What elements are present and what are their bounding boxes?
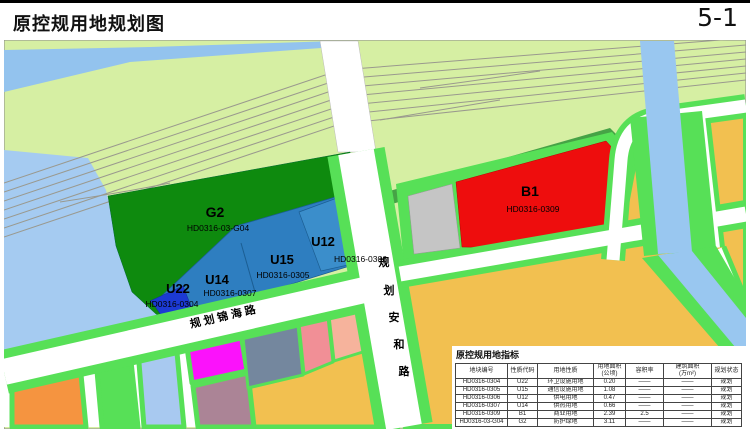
svg-text:路: 路 <box>399 364 411 378</box>
cell: U14 <box>508 403 538 411</box>
th-code: 性质代码 <box>508 364 538 379</box>
label-u22: U22 <box>166 281 190 296</box>
cell: 商业用地 <box>538 411 594 419</box>
cell: 3.11 <box>594 419 626 427</box>
code-g2: HD0316-03-G04 <box>187 223 250 233</box>
cell: HD0316-0304 <box>456 379 508 387</box>
table-row: HD0316-0304U22环卫设施用地0.20————规划 <box>456 379 742 387</box>
cell: 环卫设施用地 <box>538 379 594 387</box>
cell: U12 <box>508 395 538 403</box>
cell: B1 <box>508 411 538 419</box>
cell: —— <box>664 411 712 419</box>
cell: G2 <box>508 419 538 427</box>
label-u15: U15 <box>270 252 294 267</box>
svg-text:规: 规 <box>379 255 390 269</box>
cell: 0.66 <box>594 403 626 411</box>
cell: 0.47 <box>594 395 626 403</box>
svg-text:安: 安 <box>389 310 400 324</box>
cell: 规划 <box>712 395 742 403</box>
cell: —— <box>664 379 712 387</box>
cell: 规划 <box>712 411 742 419</box>
cell: —— <box>664 387 712 395</box>
cell: —— <box>626 403 664 411</box>
cell: U15 <box>508 387 538 395</box>
th-status: 规划状态 <box>712 364 742 379</box>
th-far: 容积率 <box>626 364 664 379</box>
cell: 规划 <box>712 403 742 411</box>
planning-sheet: { "page": { "title": "原控规用地规划图", "sheet_… <box>0 0 750 443</box>
table-row: HD0316-0307U14供热用地0.66————规划 <box>456 403 742 411</box>
gray-parcel <box>408 184 460 254</box>
cell: —— <box>664 403 712 411</box>
label-g2: G2 <box>206 204 225 220</box>
cell: 2.5 <box>626 411 664 419</box>
cell: HD0316-0309 <box>456 411 508 419</box>
cell: 规划 <box>712 419 742 427</box>
cell: 通信设施用地 <box>538 387 594 395</box>
th-plot-no: 地块编号 <box>456 364 508 379</box>
cell: 防护绿地 <box>538 419 594 427</box>
table-row: HD0316-0305U15通信设施用地1.08————规划 <box>456 387 742 395</box>
page-title: 原控规用地规划图 <box>13 10 165 36</box>
label-u12: U12 <box>311 234 335 249</box>
cell: HD0316-0305 <box>456 387 508 395</box>
cell: —— <box>664 419 712 427</box>
sheet-number: 5-1 <box>697 3 738 32</box>
code-u22: HD0316-0304 <box>146 299 199 309</box>
cell: —— <box>626 387 664 395</box>
th-use: 用地性质 <box>538 364 594 379</box>
index-table-panel: 原控规用地指标 地块编号 性质代码 用地性质 用地面积 (公顷) 容积率 建筑面… <box>452 346 748 443</box>
cell: HD0316-0307 <box>456 403 508 411</box>
code-u14: HD0316-0307 <box>204 288 257 298</box>
index-table: 地块编号 性质代码 用地性质 用地面积 (公顷) 容积率 建筑面积 (万m²) … <box>455 363 742 427</box>
cell: 2.39 <box>594 411 626 419</box>
cell: —— <box>664 395 712 403</box>
table-row: HD0316-0306U12供电用地0.47————规划 <box>456 395 742 403</box>
table-row: HD0316-03-G04G2防护绿地3.11————规划 <box>456 419 742 427</box>
top-rule <box>0 0 750 3</box>
cell: 供热用地 <box>538 403 594 411</box>
cell: 供电用地 <box>538 395 594 403</box>
svg-text:划: 划 <box>384 283 395 297</box>
label-b1: B1 <box>521 183 539 199</box>
table-row: HD0316-0309B1商业用地2.392.5——规划 <box>456 411 742 419</box>
label-u14: U14 <box>205 272 230 287</box>
th-floor: 建筑面积 (万m²) <box>664 364 712 379</box>
cell: —— <box>626 379 664 387</box>
th-area: 用地面积 (公顷) <box>594 364 626 379</box>
cell: U22 <box>508 379 538 387</box>
code-u15: HD0316-0305 <box>257 270 310 280</box>
cell: 规划 <box>712 387 742 395</box>
cell: 0.20 <box>594 379 626 387</box>
cell: —— <box>626 419 664 427</box>
table-header-row: 地块编号 性质代码 用地性质 用地面积 (公顷) 容积率 建筑面积 (万m²) … <box>456 364 742 379</box>
cell: 1.08 <box>594 387 626 395</box>
cell: 规划 <box>712 379 742 387</box>
index-table-title: 原控规用地指标 <box>456 348 745 361</box>
cell: HD0316-03-G04 <box>456 419 508 427</box>
cell: —— <box>626 395 664 403</box>
code-b1: HD0316-0309 <box>507 204 560 214</box>
svg-text:和: 和 <box>394 337 405 351</box>
cell: HD0316-0306 <box>456 395 508 403</box>
